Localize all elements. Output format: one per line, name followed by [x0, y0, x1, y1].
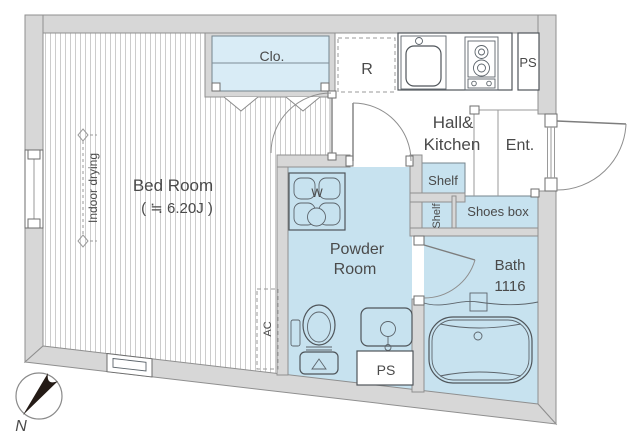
bath-label: Bath — [495, 257, 526, 274]
wall-bath-left-lower — [412, 299, 424, 392]
wall-powder-left — [277, 155, 288, 375]
powder-room-label-1: Powder — [330, 241, 385, 258]
washer-label: W — [311, 186, 323, 200]
powder-room-label-2: Room — [334, 261, 377, 278]
wall-shelf-divider — [410, 193, 465, 202]
wall-right-upper — [538, 15, 556, 114]
pipe-space-top-label: PS — [519, 55, 537, 70]
shoes-box-jamb — [531, 189, 539, 197]
wall-left-upper — [25, 15, 43, 150]
closet-label: Clo. — [260, 48, 285, 64]
wall-top — [25, 15, 556, 33]
wall-left-lower — [25, 228, 43, 362]
floor-plan-page: Clo. Bed Room ( ≒ 6.20J ) Indoor drying … — [0, 0, 640, 445]
indoor-drying-label: Indoor drying — [86, 153, 100, 223]
window-left — [25, 150, 43, 228]
entrance-label: Ent. — [506, 137, 534, 154]
entrance-door-swing-arc — [557, 124, 626, 190]
powder-door-swing-arc — [353, 103, 411, 161]
powder-room-door — [346, 103, 413, 166]
closet-track-end-right — [321, 83, 329, 91]
wall-powder-top — [277, 155, 350, 167]
closet-track-end-left — [212, 83, 220, 91]
ac-label: AC — [262, 321, 274, 336]
compass-icon — [16, 373, 62, 419]
refrigerator-label: R — [361, 61, 373, 78]
bath-size-label: 1116 — [494, 278, 525, 295]
pipe-space-bottom-label: PS — [377, 362, 396, 378]
wall-shoes-divider — [452, 196, 456, 229]
shelf-upper-label: Shelf — [428, 173, 458, 188]
wall-right-lower — [538, 191, 556, 424]
entrance-door — [545, 114, 626, 191]
shelf-lower-label: Shelf — [431, 203, 443, 229]
floor-plan: Clo. Bed Room ( ≒ 6.20J ) Indoor drying … — [0, 0, 640, 445]
hall-kitchen-label-1: Hall& — [433, 113, 474, 132]
compass-north-label: N — [15, 418, 27, 435]
wall-above-bath — [410, 228, 538, 236]
hall-kitchen-label-2: Kitchen — [424, 135, 481, 154]
bedroom-size-label: ( ≒ 6.20J ) — [141, 200, 213, 217]
shoes-box-label: Shoes box — [467, 204, 529, 219]
bedroom-label: Bed Room — [133, 176, 213, 195]
